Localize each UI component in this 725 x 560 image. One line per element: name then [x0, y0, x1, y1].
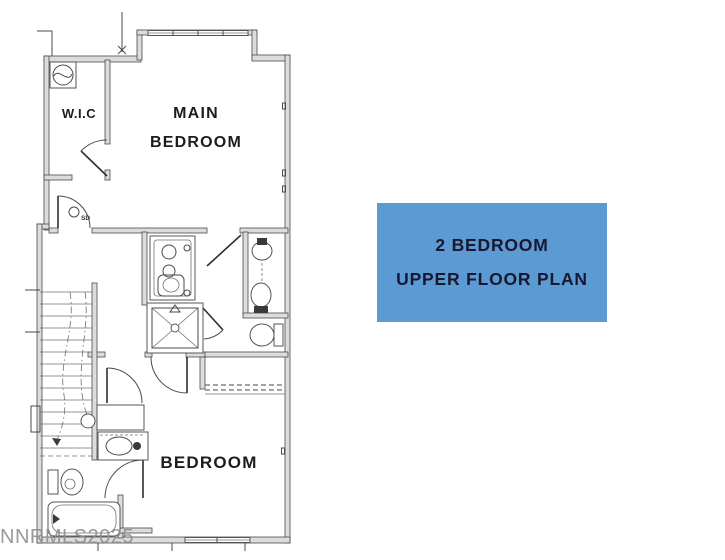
- toilet: [251, 283, 271, 307]
- hall-closet-door: [107, 368, 142, 403]
- toilet: [48, 469, 83, 495]
- bedroom-closet: [205, 385, 285, 394]
- bedroom-window: [185, 538, 250, 543]
- main-bedroom-label-line2: BEDROOM: [150, 134, 242, 151]
- bathroom3-door: [105, 460, 143, 498]
- info-panel: 2 BEDROOM UPPER FLOOR PLAN: [377, 203, 607, 322]
- faucet: [133, 442, 141, 450]
- staircase: [40, 292, 97, 456]
- stairs-newel-symbol: [81, 414, 95, 428]
- shower-door: [203, 308, 223, 339]
- double-vanity: [147, 236, 195, 300]
- main-bedroom-label-line1: MAIN: [173, 105, 219, 122]
- bedroom-label: BEDROOM: [160, 453, 257, 472]
- stairs-direction-arrow: [52, 438, 61, 446]
- info-panel-line2: UPPER FLOOR PLAN: [396, 269, 588, 290]
- wic-label: W.I.C: [62, 106, 96, 121]
- exhaust-fan-symbol: [50, 62, 76, 88]
- screenshot-root: SD: [0, 0, 725, 560]
- faucet: [257, 238, 267, 245]
- floor-plan-drawing: SD: [0, 0, 725, 560]
- bay-window: [148, 31, 248, 36]
- wic-door: [81, 140, 107, 176]
- mls-watermark: NNRMLS2025: [0, 526, 134, 548]
- info-panel-line1: 2 BEDROOM: [435, 235, 548, 256]
- main-bedroom-door: [58, 196, 90, 228]
- bathroom2-door: [207, 235, 241, 266]
- bedroom-door: [151, 357, 187, 393]
- bathroom-2: [251, 238, 272, 313]
- water-closet-toilet: [250, 324, 283, 346]
- shower: [147, 303, 203, 353]
- hall-vanity: [97, 405, 148, 460]
